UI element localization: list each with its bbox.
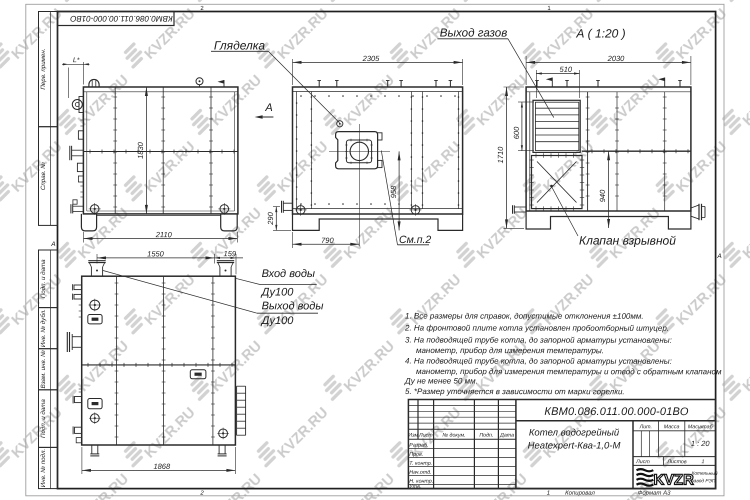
svg-text:Ду не менее 50 мм.: Ду не менее 50 мм. bbox=[404, 376, 478, 385]
svg-text:600: 600 bbox=[512, 126, 521, 139]
svg-text:КВМ0.086.011.00.000-01ВО: КВМ0.086.011.00.000-01ВО bbox=[544, 406, 688, 418]
svg-text:Разраб.: Разраб. bbox=[409, 443, 428, 449]
svg-text:Листов: Листов bbox=[666, 459, 687, 465]
svg-text:958: 958 bbox=[389, 185, 398, 198]
svg-text:290: 290 bbox=[266, 211, 275, 225]
svg-text:Масштаб: Масштаб bbox=[688, 424, 714, 430]
svg-text:Копировал: Копировал bbox=[565, 490, 595, 497]
svg-text:А: А bbox=[264, 102, 272, 114]
svg-text:А: А bbox=[50, 241, 55, 248]
svg-text:1: 1 bbox=[547, 490, 550, 497]
svg-text:2030: 2030 bbox=[607, 54, 626, 63]
svg-text:Изм: Изм bbox=[408, 433, 418, 439]
svg-text:1: 1 bbox=[702, 459, 705, 465]
svg-text:Пров.: Пров. bbox=[409, 452, 423, 458]
svg-text:№ докум.: № докум. bbox=[442, 433, 465, 439]
svg-text:Утв.: Утв. bbox=[409, 484, 421, 490]
svg-text:Масса: Масса bbox=[664, 424, 680, 430]
svg-text:Выход воды: Выход воды bbox=[262, 300, 324, 312]
svg-text:манометр, прибор для измерения: манометр, прибор для измерения температу… bbox=[416, 367, 722, 376]
svg-text:Справ. №: Справ. № bbox=[40, 162, 47, 190]
svg-text:Лит.: Лит. bbox=[639, 424, 652, 430]
svg-text:КВМ0.086.011.00.000-01ВО: КВМ0.086.011.00.000-01ВО bbox=[70, 14, 173, 23]
svg-text:Дата: Дата bbox=[499, 433, 514, 439]
svg-text:Ду100: Ду100 bbox=[260, 315, 295, 327]
svg-text:Инв. № дубл.: Инв. № дубл. bbox=[40, 309, 47, 347]
svg-text:510: 510 bbox=[560, 65, 573, 74]
svg-text:1868: 1868 bbox=[153, 462, 171, 471]
svg-text:Нач.отд.: Нач.отд. bbox=[409, 470, 431, 476]
svg-text:А: А bbox=[716, 253, 721, 260]
svg-text:2: 2 bbox=[199, 490, 204, 497]
svg-text:Гляделка: Гляделка bbox=[214, 38, 266, 52]
svg-text:Формат А3: Формат А3 bbox=[638, 490, 672, 497]
svg-text:манометр, прибор для измерения: манометр, прибор для измерения температу… bbox=[416, 346, 604, 355]
svg-text:Котел водогрейный: Котел водогрейный bbox=[529, 427, 620, 438]
svg-text:Инв. № подл.: Инв. № подл. bbox=[40, 449, 47, 487]
svg-text:1. Все размеры для справок, до: 1. Все размеры для справок, допустимые о… bbox=[405, 312, 644, 321]
svg-text:2110: 2110 bbox=[155, 230, 173, 239]
svg-text:А ( 1:20 ): А ( 1:20 ) bbox=[575, 26, 625, 40]
svg-text:5. *Размер уточняется в зависи: 5. *Размер уточняется в зависимости от м… bbox=[405, 387, 625, 396]
svg-text:Выход газов: Выход газов bbox=[440, 26, 508, 39]
svg-text:KVZR: KVZR bbox=[653, 473, 694, 489]
svg-text:2. На фронтовой плите котла ус: 2. На фронтовой плите котла установлен п… bbox=[404, 323, 669, 332]
svg-text:790: 790 bbox=[321, 236, 334, 245]
svg-text:Лист: Лист bbox=[418, 433, 433, 439]
svg-text:Подп. и дата: Подп. и дата bbox=[40, 259, 47, 298]
svg-text:Перв. примен.: Перв. примен. bbox=[40, 49, 47, 90]
svg-text:4. На подводящей трубе котла,: 4. На подводящей трубе котла, до запорно… bbox=[405, 357, 672, 366]
svg-text:940: 940 bbox=[598, 189, 607, 202]
svg-text:2305: 2305 bbox=[362, 54, 381, 63]
svg-text:L*: L* bbox=[73, 57, 80, 64]
svg-text:1830: 1830 bbox=[136, 141, 145, 159]
svg-text:Вход воды: Вход воды bbox=[262, 268, 315, 280]
svg-text:Подп.: Подп. bbox=[479, 433, 493, 439]
svg-text:3. На подводящей трубе котла,: 3. На подводящей трубе котла, до запорно… bbox=[405, 336, 672, 345]
svg-text:Heatexpert-Ква-1,0-М: Heatexpert-Ква-1,0-М bbox=[528, 440, 621, 451]
svg-text:Ду100: Ду100 bbox=[260, 286, 295, 298]
svg-text:159: 159 bbox=[224, 249, 237, 258]
svg-text:Взам. инв. №: Взам. инв. № bbox=[40, 350, 47, 389]
svg-text:1710: 1710 bbox=[496, 146, 505, 164]
svg-text:Котельный: Котельный bbox=[691, 471, 717, 477]
svg-text:Т. контр.: Т. контр. bbox=[409, 461, 432, 467]
svg-text:Лист: Лист bbox=[635, 459, 650, 465]
svg-text:завод РЭП: завод РЭП bbox=[690, 478, 715, 484]
svg-text:См.п.2: См.п.2 bbox=[399, 234, 431, 246]
svg-text:1550: 1550 bbox=[147, 249, 165, 258]
svg-text:Подп. и дата: Подп. и дата bbox=[40, 399, 47, 438]
svg-text:Клапан взрывной: Клапан взрывной bbox=[579, 234, 676, 248]
svg-text:1 : 20: 1 : 20 bbox=[691, 439, 711, 448]
